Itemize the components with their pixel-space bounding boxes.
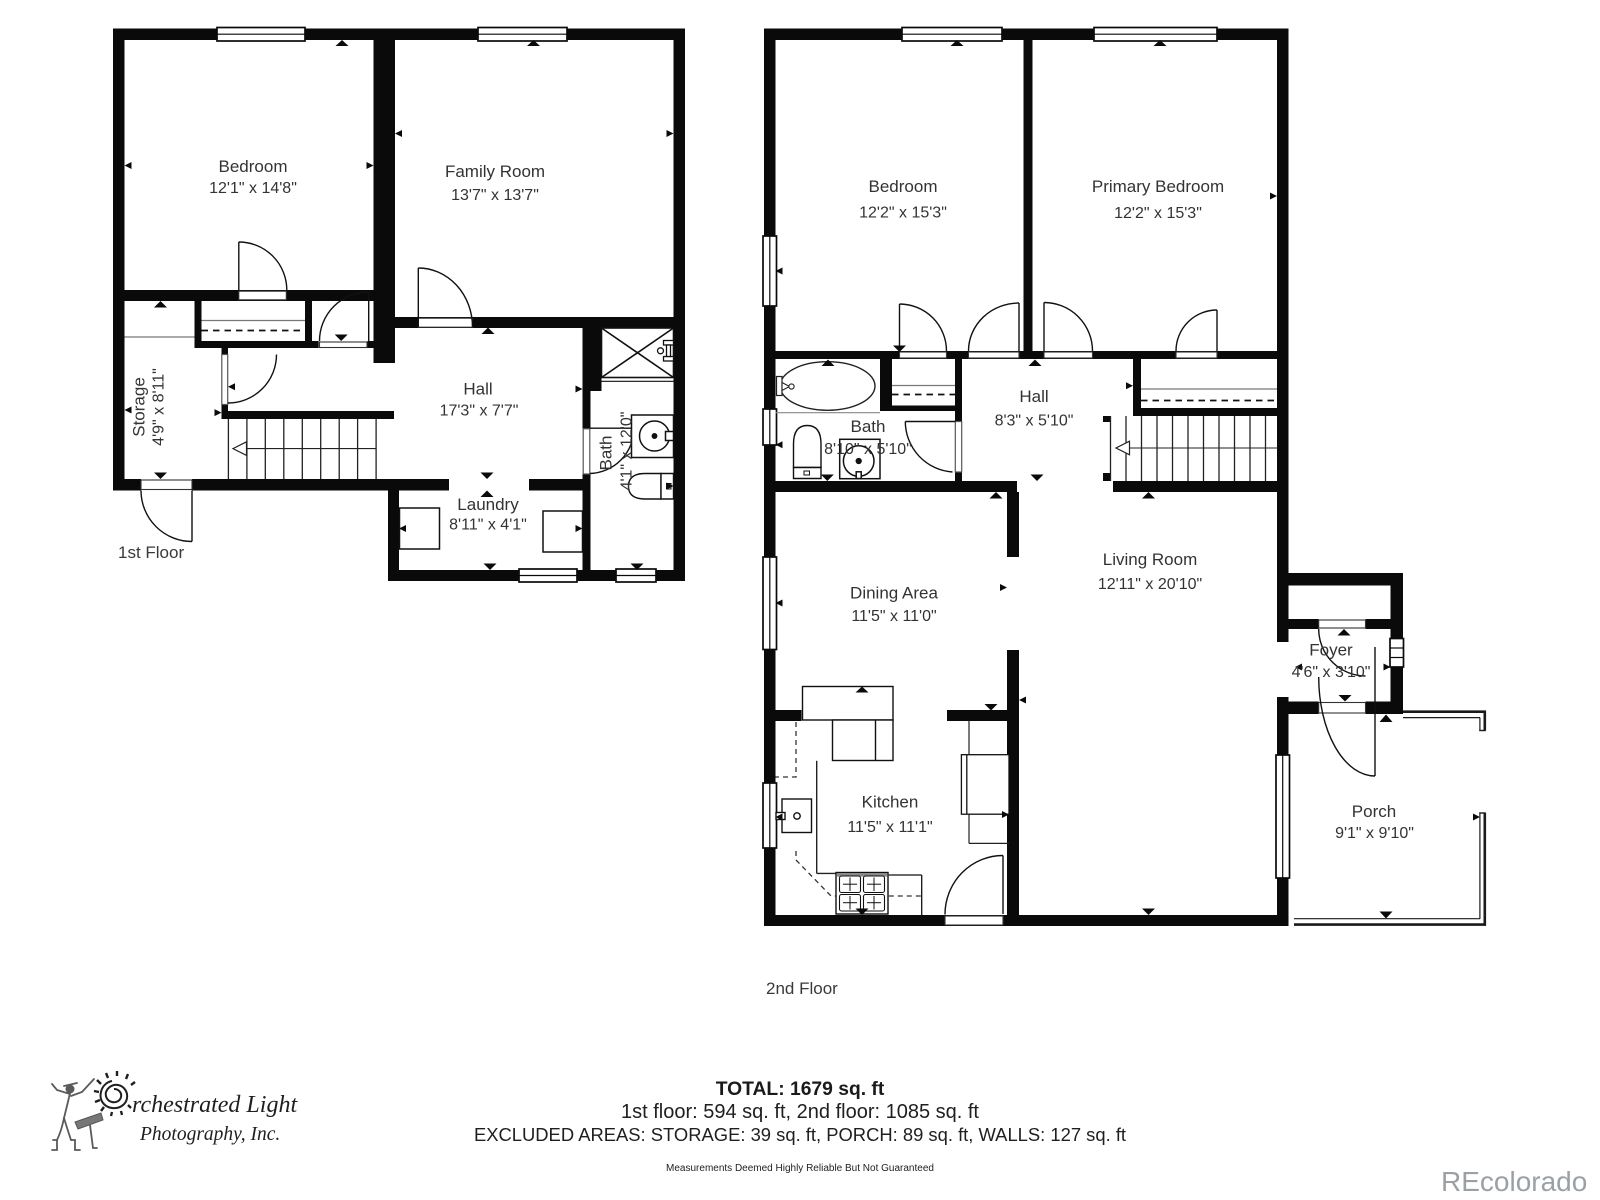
svg-text:Measurements Deemed Highly Rel: Measurements Deemed Highly Reliable But … (666, 1163, 934, 1174)
svg-text:Storage: Storage (130, 377, 149, 437)
svg-text:Bedroom: Bedroom (219, 157, 288, 176)
svg-text:Foyer: Foyer (1309, 641, 1353, 660)
svg-text:1st Floor: 1st Floor (118, 543, 184, 562)
svg-text:4'9" x 8'11": 4'9" x 8'11" (151, 368, 168, 446)
svg-text:Bedroom: Bedroom (869, 177, 938, 196)
svg-text:TOTAL: 1679 sq. ft: TOTAL: 1679 sq. ft (716, 1079, 885, 1100)
svg-text:Laundry: Laundry (457, 495, 519, 514)
svg-text:Primary Bedroom: Primary Bedroom (1092, 177, 1224, 196)
svg-text:2nd Floor: 2nd Floor (766, 979, 838, 998)
svg-text:12'11" x 20'10": 12'11" x 20'10" (1098, 576, 1202, 593)
svg-text:9'1" x 9'10": 9'1" x 9'10" (1335, 825, 1414, 842)
svg-text:12'2" x 15'3": 12'2" x 15'3" (1114, 205, 1202, 222)
svg-text:4'1" x 12'0": 4'1" x 12'0" (619, 412, 636, 491)
svg-text:11'5" x 11'0": 11'5" x 11'0" (851, 608, 936, 625)
svg-text:Porch: Porch (1352, 802, 1396, 821)
svg-text:12'1" x 14'8": 12'1" x 14'8" (209, 180, 297, 197)
svg-text:12'2" x 15'3": 12'2" x 15'3" (859, 205, 947, 222)
svg-text:Family Room: Family Room (445, 162, 545, 181)
svg-text:Photography, Inc.: Photography, Inc. (139, 1124, 280, 1145)
svg-text:Bath: Bath (597, 436, 616, 471)
svg-text:rchestrated Light: rchestrated Light (132, 1092, 298, 1118)
svg-text:Bath: Bath (851, 417, 886, 436)
svg-text:11'5" x 11'1": 11'5" x 11'1" (847, 819, 932, 836)
svg-text:Hall: Hall (1019, 387, 1048, 406)
svg-text:1st floor: 594 sq. ft, 2nd flo: 1st floor: 594 sq. ft, 2nd floor: 1085 s… (621, 1101, 979, 1123)
svg-text:8'10" x 5'10": 8'10" x 5'10" (824, 441, 912, 458)
svg-text:EXCLUDED AREAS: STORAGE: 39 sq: EXCLUDED AREAS: STORAGE: 39 sq. ft, PORC… (474, 1124, 1126, 1145)
svg-text:8'3" x 5'10": 8'3" x 5'10" (995, 413, 1074, 430)
svg-text:17'3" x 7'7": 17'3" x 7'7" (440, 403, 519, 420)
svg-text:13'7" x 13'7": 13'7" x 13'7" (451, 187, 539, 204)
svg-text:4'6" x 3'10": 4'6" x 3'10" (1292, 664, 1371, 681)
svg-text:REcolorado: REcolorado (1441, 1166, 1587, 1197)
svg-text:8'11" x 4'1": 8'11" x 4'1" (449, 517, 527, 534)
svg-text:Dining Area: Dining Area (850, 584, 938, 603)
svg-text:Kitchen: Kitchen (862, 793, 919, 812)
svg-text:Hall: Hall (463, 380, 492, 399)
svg-text:Living Room: Living Room (1103, 550, 1198, 569)
